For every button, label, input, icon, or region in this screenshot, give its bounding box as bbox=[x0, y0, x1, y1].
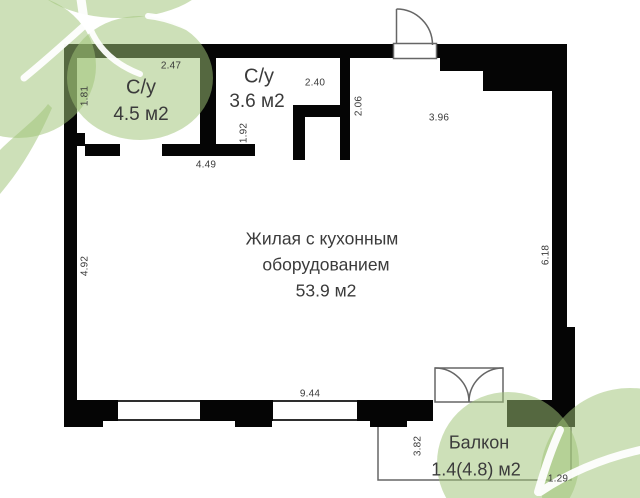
dim-living-width: 9.44 bbox=[300, 389, 320, 400]
living-room-label-line3: 53.9 м2 bbox=[296, 281, 357, 302]
bath2-label: С/у bbox=[244, 66, 274, 89]
living-room-label-line1: Жилая с кухонным bbox=[246, 229, 399, 250]
dim-entry-width: 3.96 bbox=[429, 113, 449, 124]
bath1-area: 4.5 м2 bbox=[113, 104, 168, 126]
living-room-label-line2: оборудованием bbox=[262, 255, 389, 276]
dim-living-right: 6.18 bbox=[541, 245, 552, 265]
dim-hall-width: 2.40 bbox=[305, 78, 325, 89]
floor-plan: 2.47 1.81 2.40 2.06 3.96 1.92 4.49 4.92 … bbox=[0, 0, 640, 498]
dim-balcony-edge: 1.29 bbox=[548, 474, 568, 485]
balcony-area: 1.4(4.8) м2 bbox=[431, 460, 520, 481]
bath1-label: С/у bbox=[126, 77, 156, 100]
dim-bath1-width: 2.47 bbox=[161, 61, 181, 72]
labels-layer: 2.47 1.81 2.40 2.06 3.96 1.92 4.49 4.92 … bbox=[0, 0, 640, 498]
dim-bath2-depth: 1.92 bbox=[239, 123, 250, 143]
dim-hall-wall: 2.06 bbox=[354, 96, 365, 116]
dim-baths-width: 4.49 bbox=[196, 160, 216, 171]
dim-living-left: 4.92 bbox=[80, 256, 91, 276]
dim-balcony-depth: 3.82 bbox=[413, 436, 424, 456]
dim-bath1-depth: 1.81 bbox=[80, 86, 91, 106]
bath2-area: 3.6 м2 bbox=[229, 91, 284, 113]
balcony-label: Балкон bbox=[449, 433, 509, 454]
